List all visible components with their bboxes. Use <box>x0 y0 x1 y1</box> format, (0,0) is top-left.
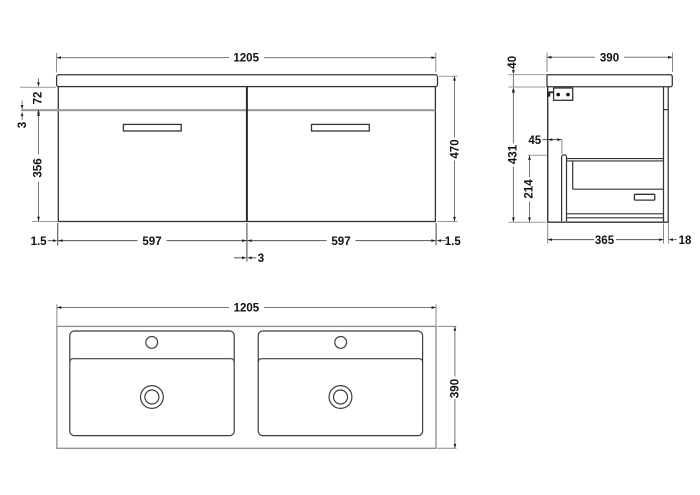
svg-text:72: 72 <box>33 92 45 105</box>
svg-text:470: 470 <box>449 139 461 158</box>
svg-text:390: 390 <box>450 379 462 398</box>
svg-text:597: 597 <box>142 236 161 248</box>
svg-text:597: 597 <box>331 236 350 248</box>
svg-text:365: 365 <box>595 235 615 247</box>
svg-text:1.5: 1.5 <box>445 236 462 248</box>
svg-text:1205: 1205 <box>234 303 260 315</box>
svg-text:45: 45 <box>528 135 541 147</box>
svg-text:390: 390 <box>600 52 619 64</box>
svg-text:214: 214 <box>524 179 536 199</box>
svg-text:1205: 1205 <box>233 53 259 65</box>
svg-text:3: 3 <box>258 253 264 265</box>
svg-text:356: 356 <box>33 158 45 177</box>
svg-text:40: 40 <box>507 56 519 69</box>
svg-text:18: 18 <box>679 235 692 247</box>
svg-text:3: 3 <box>17 122 29 128</box>
svg-text:1.5: 1.5 <box>31 236 48 248</box>
svg-text:431: 431 <box>507 144 519 164</box>
